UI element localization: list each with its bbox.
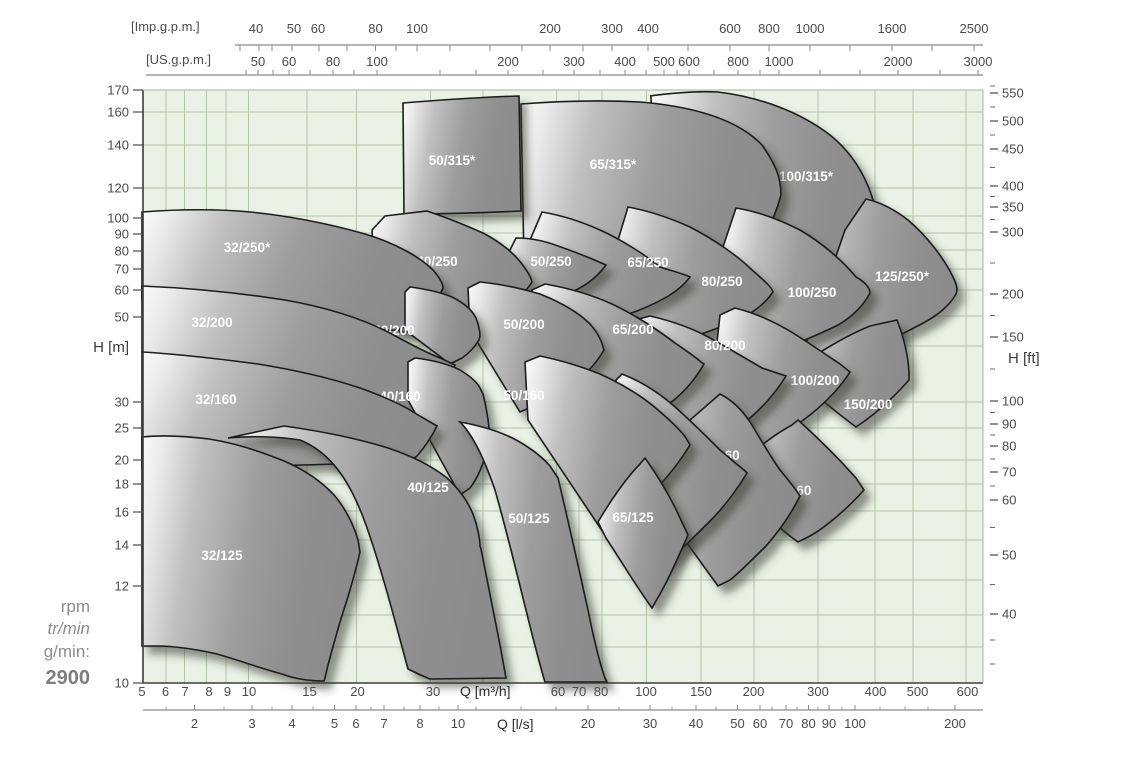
svg-text:300: 300 bbox=[807, 684, 829, 699]
svg-text:15: 15 bbox=[302, 684, 316, 699]
svg-text:H [ft]: H [ft] bbox=[1008, 350, 1040, 367]
svg-text:200: 200 bbox=[1002, 287, 1024, 302]
svg-text:60: 60 bbox=[753, 716, 767, 731]
svg-text:[US.g.p.m.]: [US.g.p.m.] bbox=[146, 52, 211, 67]
svg-text:18: 18 bbox=[115, 477, 129, 492]
svg-text:50/250: 50/250 bbox=[530, 254, 571, 269]
svg-text:6: 6 bbox=[352, 716, 359, 731]
svg-text:500: 500 bbox=[653, 54, 675, 69]
svg-text:70: 70 bbox=[115, 262, 129, 277]
svg-text:2900: 2900 bbox=[46, 667, 91, 689]
svg-text:30: 30 bbox=[426, 684, 440, 699]
svg-text:40: 40 bbox=[249, 21, 263, 36]
svg-text:60: 60 bbox=[1002, 493, 1016, 508]
svg-text:350: 350 bbox=[1002, 200, 1024, 215]
svg-text:10: 10 bbox=[115, 676, 129, 691]
svg-text:100: 100 bbox=[844, 716, 866, 731]
svg-text:2500: 2500 bbox=[960, 21, 989, 36]
svg-text:32/125: 32/125 bbox=[201, 548, 243, 563]
svg-text:30: 30 bbox=[643, 716, 657, 731]
svg-text:550: 550 bbox=[1002, 86, 1024, 101]
svg-text:80/200: 80/200 bbox=[704, 338, 745, 353]
svg-text:20: 20 bbox=[350, 684, 364, 699]
svg-text:60: 60 bbox=[311, 21, 325, 36]
svg-text:450: 450 bbox=[1002, 142, 1024, 157]
svg-text:[Imp.g.p.m.]: [Imp.g.p.m.] bbox=[131, 19, 200, 34]
svg-text:80: 80 bbox=[594, 684, 608, 699]
svg-text:2000: 2000 bbox=[884, 54, 913, 69]
svg-text:32/200: 32/200 bbox=[191, 315, 232, 330]
svg-text:80/250: 80/250 bbox=[701, 274, 742, 289]
svg-text:Q [l/s]: Q [l/s] bbox=[497, 716, 534, 732]
svg-text:65/315*: 65/315* bbox=[590, 157, 637, 172]
svg-text:80: 80 bbox=[368, 21, 382, 36]
svg-text:150: 150 bbox=[690, 684, 712, 699]
svg-text:300: 300 bbox=[601, 21, 623, 36]
svg-text:5: 5 bbox=[138, 684, 145, 699]
svg-text:7: 7 bbox=[181, 684, 188, 699]
svg-text:500: 500 bbox=[907, 684, 929, 699]
svg-text:140: 140 bbox=[107, 138, 129, 153]
svg-text:600: 600 bbox=[957, 684, 979, 699]
svg-text:tr/min: tr/min bbox=[48, 619, 91, 638]
svg-text:g/min:: g/min: bbox=[44, 642, 90, 661]
svg-text:100/250: 100/250 bbox=[788, 285, 837, 300]
svg-text:125/250*: 125/250* bbox=[875, 269, 930, 284]
svg-text:80: 80 bbox=[115, 244, 129, 259]
svg-text:800: 800 bbox=[727, 54, 749, 69]
svg-text:8: 8 bbox=[205, 684, 212, 699]
svg-text:400: 400 bbox=[1002, 179, 1024, 194]
svg-text:1000: 1000 bbox=[796, 21, 825, 36]
svg-text:16: 16 bbox=[115, 505, 129, 520]
svg-text:50/200: 50/200 bbox=[503, 317, 544, 332]
svg-text:65/125: 65/125 bbox=[612, 510, 654, 525]
svg-text:3000: 3000 bbox=[964, 54, 993, 69]
svg-text:100: 100 bbox=[635, 684, 657, 699]
svg-text:50/315*: 50/315* bbox=[429, 153, 476, 168]
svg-text:rpm: rpm bbox=[61, 597, 90, 616]
svg-text:H [m]: H [m] bbox=[93, 339, 129, 356]
svg-text:32/160: 32/160 bbox=[195, 392, 236, 407]
svg-text:90: 90 bbox=[1002, 417, 1016, 432]
svg-text:65/250: 65/250 bbox=[627, 255, 668, 270]
svg-text:30: 30 bbox=[115, 395, 129, 410]
svg-text:400: 400 bbox=[614, 54, 636, 69]
svg-text:80: 80 bbox=[1002, 439, 1016, 454]
svg-text:50: 50 bbox=[1002, 548, 1016, 563]
svg-text:9: 9 bbox=[224, 684, 231, 699]
svg-text:200: 200 bbox=[497, 54, 519, 69]
svg-text:Q [m³/h]: Q [m³/h] bbox=[460, 683, 511, 699]
svg-text:200: 200 bbox=[944, 716, 966, 731]
svg-text:70: 70 bbox=[572, 684, 586, 699]
svg-text:600: 600 bbox=[719, 21, 741, 36]
svg-text:40: 40 bbox=[1002, 607, 1016, 622]
svg-text:100: 100 bbox=[406, 21, 428, 36]
svg-text:70: 70 bbox=[779, 716, 793, 731]
svg-text:1600: 1600 bbox=[878, 21, 907, 36]
svg-text:300: 300 bbox=[563, 54, 585, 69]
svg-text:8: 8 bbox=[416, 716, 423, 731]
svg-text:100: 100 bbox=[1002, 394, 1024, 409]
svg-text:100: 100 bbox=[366, 54, 388, 69]
svg-text:200: 200 bbox=[539, 21, 561, 36]
svg-text:80: 80 bbox=[326, 54, 340, 69]
svg-text:14: 14 bbox=[115, 538, 129, 553]
svg-text:150/200: 150/200 bbox=[844, 397, 893, 412]
svg-text:100: 100 bbox=[107, 211, 129, 226]
svg-text:12: 12 bbox=[115, 579, 129, 594]
svg-text:65/200: 65/200 bbox=[612, 322, 653, 337]
svg-text:5: 5 bbox=[331, 716, 338, 731]
svg-text:150: 150 bbox=[1002, 330, 1024, 345]
svg-text:500: 500 bbox=[1002, 114, 1024, 129]
svg-text:7: 7 bbox=[380, 716, 387, 731]
svg-text:50/160: 50/160 bbox=[503, 388, 544, 403]
svg-text:50: 50 bbox=[115, 310, 129, 325]
svg-text:25: 25 bbox=[115, 421, 129, 436]
svg-text:32/250*: 32/250* bbox=[224, 240, 271, 255]
svg-text:90: 90 bbox=[822, 716, 836, 731]
svg-text:1000: 1000 bbox=[765, 54, 794, 69]
svg-text:400: 400 bbox=[865, 684, 887, 699]
svg-text:10: 10 bbox=[242, 684, 256, 699]
svg-text:60: 60 bbox=[282, 54, 296, 69]
svg-text:90: 90 bbox=[115, 227, 129, 242]
svg-text:20: 20 bbox=[115, 453, 129, 468]
svg-text:120: 120 bbox=[107, 181, 129, 196]
svg-text:50: 50 bbox=[730, 716, 744, 731]
svg-text:60: 60 bbox=[115, 283, 129, 298]
svg-text:100/315*: 100/315* bbox=[779, 169, 834, 184]
svg-text:600: 600 bbox=[678, 54, 700, 69]
svg-text:100/200: 100/200 bbox=[791, 373, 840, 388]
svg-text:80: 80 bbox=[801, 716, 815, 731]
svg-text:200: 200 bbox=[743, 684, 765, 699]
svg-text:20: 20 bbox=[581, 716, 595, 731]
svg-text:2: 2 bbox=[191, 716, 198, 731]
svg-text:70: 70 bbox=[1002, 465, 1016, 480]
svg-text:4: 4 bbox=[288, 716, 295, 731]
svg-text:800: 800 bbox=[758, 21, 780, 36]
svg-text:400: 400 bbox=[637, 21, 659, 36]
svg-text:170: 170 bbox=[107, 83, 129, 98]
svg-text:3: 3 bbox=[248, 716, 255, 731]
svg-text:40/125: 40/125 bbox=[407, 480, 449, 495]
svg-text:160: 160 bbox=[107, 105, 129, 120]
svg-text:50: 50 bbox=[251, 54, 265, 69]
svg-text:60: 60 bbox=[551, 684, 565, 699]
svg-text:6: 6 bbox=[162, 684, 169, 699]
svg-text:50: 50 bbox=[287, 21, 301, 36]
svg-text:10: 10 bbox=[451, 716, 465, 731]
svg-text:40: 40 bbox=[689, 716, 703, 731]
svg-text:300: 300 bbox=[1002, 225, 1024, 240]
svg-text:50/125: 50/125 bbox=[508, 511, 550, 526]
